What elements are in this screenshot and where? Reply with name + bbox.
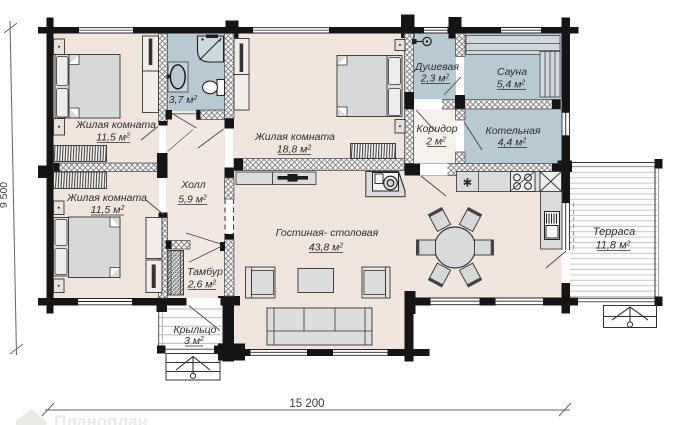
svg-text:Тамбур: Тамбур xyxy=(187,266,223,278)
svg-text:11,5 м2: 11,5 м2 xyxy=(96,132,130,144)
svg-text:Сауна: Сауна xyxy=(497,66,527,78)
svg-text:Планоплан: Планоплан xyxy=(54,412,148,425)
svg-text:11,8 м2: 11,8 м2 xyxy=(595,240,630,252)
svg-text:Жилая комната: Жилая комната xyxy=(66,192,147,204)
svg-text:5,9 м2: 5,9 м2 xyxy=(178,194,207,206)
svg-text:✱: ✱ xyxy=(463,178,473,190)
svg-text:43,8 м2: 43,8 м2 xyxy=(309,242,344,254)
svg-text:Коридор: Коридор xyxy=(416,123,457,135)
svg-text:Котельная: Котельная xyxy=(486,125,541,137)
svg-text:Холл: Холл xyxy=(180,179,205,191)
svg-text:Жилая комната: Жилая комната xyxy=(75,119,156,131)
svg-text:4,4 м2: 4,4 м2 xyxy=(498,137,527,149)
svg-text:5,4 м2: 5,4 м2 xyxy=(497,79,526,91)
svg-text:18,8 м2: 18,8 м2 xyxy=(277,144,312,156)
svg-text:2,3 м2: 2,3 м2 xyxy=(420,73,450,85)
svg-text:Душевая: Душевая xyxy=(414,61,459,73)
svg-text:2,6 м2: 2,6 м2 xyxy=(187,279,217,291)
svg-text:3,7 м2: 3,7 м2 xyxy=(169,94,198,106)
svg-text:Терраса: Терраса xyxy=(593,226,635,238)
svg-text:11,5 м2: 11,5 м2 xyxy=(91,204,125,216)
svg-text:Гостиная- столовая: Гостиная- столовая xyxy=(276,227,379,239)
svg-text:15 200: 15 200 xyxy=(289,398,324,410)
svg-text:9 500: 9 500 xyxy=(0,182,10,208)
svg-text:Жилая комната: Жилая комната xyxy=(254,131,335,143)
